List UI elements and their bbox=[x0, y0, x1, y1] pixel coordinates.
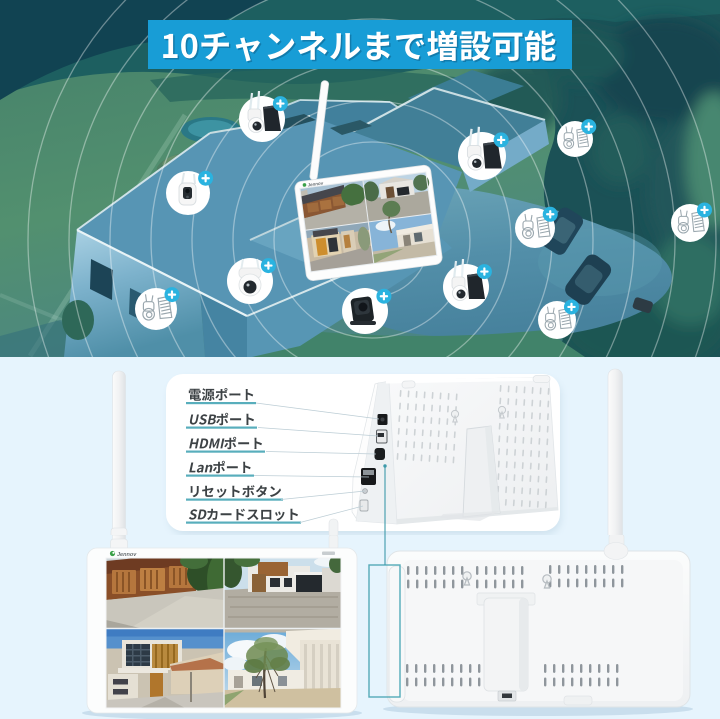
svg-text:Jennov: Jennov bbox=[117, 552, 137, 558]
